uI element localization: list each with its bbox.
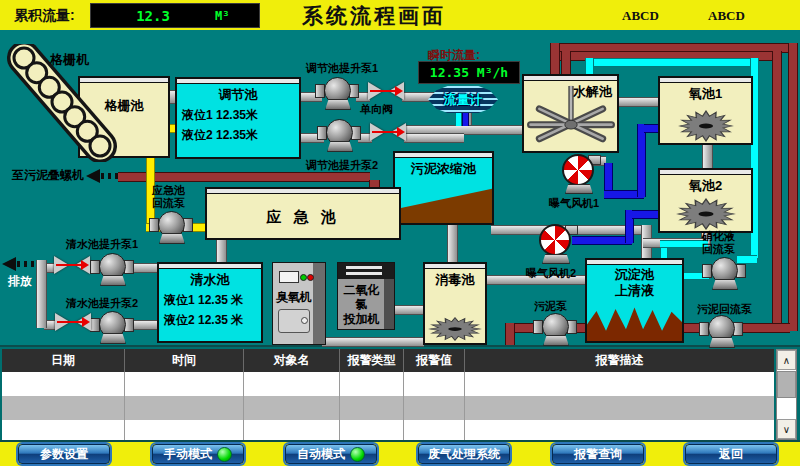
col-alarm-type: 报警类型 xyxy=(340,349,404,372)
col-alarm-desc: 报警描述 xyxy=(465,349,774,372)
air-pipe xyxy=(572,236,632,245)
regulating-pump-1-label: 调节池提升泵1 xyxy=(306,61,378,76)
emergency-return-pump[interactable] xyxy=(152,210,190,244)
sludge-pipe xyxy=(550,43,560,76)
pipe xyxy=(702,143,713,169)
col-date: 日期 xyxy=(2,349,125,372)
pipe xyxy=(447,225,458,263)
tank-title: 调节池 xyxy=(177,86,299,104)
col-alarm-value: 报警值 xyxy=(404,349,465,372)
tank-cap xyxy=(660,170,751,175)
alarm-row xyxy=(2,372,774,396)
return-button[interactable]: 返回 xyxy=(685,444,777,464)
cumulative-flow-unit: M³ xyxy=(215,9,259,23)
tank-emergency-pool: 应 急 池 xyxy=(205,187,401,240)
to-screw-arrow-icon xyxy=(86,169,120,183)
button-label: 废气处理系统 xyxy=(428,446,500,463)
auto-mode-button[interactable]: 自动模式 xyxy=(285,444,377,464)
manual-mode-led-icon xyxy=(217,447,232,462)
scroll-thumb[interactable] xyxy=(777,371,796,398)
tank-regulating-pool: 调节池 液位1 12.35米 液位2 12.35米 xyxy=(175,77,301,159)
scroll-up-button[interactable]: ∧ xyxy=(777,350,796,370)
pipe xyxy=(322,337,424,347)
alarm-table-header: 日期 时间 对象名 报警类型 报警值 报警描述 xyxy=(2,349,774,372)
button-label: 报警查询 xyxy=(574,446,622,463)
hmi-screen: 累积流量: 12.3 M³ 系统流程画面 ABCD ABCD xyxy=(0,0,800,466)
ozone-display xyxy=(279,271,299,283)
meter-pipe xyxy=(462,113,469,126)
aerator-gear-icon xyxy=(678,110,734,142)
ozone-machine-label: 臭氧机 xyxy=(275,289,312,306)
cumulative-flow-value: 12.3 xyxy=(91,8,215,24)
discharge-valve-2[interactable] xyxy=(55,313,91,331)
discharge-label: 排放 xyxy=(8,273,32,290)
sludge-layer xyxy=(587,305,682,341)
top-bar: 累积流量: 12.3 M³ 系统流程画面 ABCD ABCD xyxy=(0,0,800,32)
page-title: 系统流程画面 xyxy=(302,2,446,30)
col-time: 时间 xyxy=(125,349,244,372)
alarm-query-button[interactable]: 报警查询 xyxy=(552,444,644,464)
tank-title: 氧池1 xyxy=(660,85,751,103)
tank-cap xyxy=(660,78,751,83)
pipe xyxy=(616,97,660,107)
button-label: 自动模式 xyxy=(297,446,345,463)
auto-mode-led-icon xyxy=(350,447,365,462)
sludge-pipe xyxy=(505,323,515,345)
clean-pump-1-label: 清水池提升泵1 xyxy=(66,237,138,252)
waste-gas-system-button[interactable]: 废气处理系统 xyxy=(418,444,510,464)
emergency-return-pump-label: 应急池 回流泵 xyxy=(152,184,185,209)
to-sludge-screw-label: 至污泥叠螺机 xyxy=(12,167,84,184)
button-label: 手动模式 xyxy=(164,446,212,463)
ozone-knob-icon xyxy=(301,317,308,324)
process-diagram: 格栅池 格栅机 调节池 液位1 12.35米 液位2 12.35米 水解池 xyxy=(0,30,800,345)
tank-sludge-thickening: 污泥浓缩池 xyxy=(393,151,494,225)
aerator-gear-icon xyxy=(676,198,736,230)
scroll-down-button[interactable]: ∨ xyxy=(777,419,796,439)
aeration-blower-1[interactable] xyxy=(561,154,595,194)
button-label: 参数设置 xyxy=(40,446,88,463)
sludge-pipe xyxy=(118,172,370,182)
tank-cap xyxy=(524,76,617,81)
sludge-pipe xyxy=(788,43,798,331)
sludge-pipe xyxy=(561,51,571,76)
tank-title: 清水池 xyxy=(159,271,261,289)
chlorine-doser-label: 二氧化氯 投加机 xyxy=(338,283,385,326)
sludge-return-pump-label: 污泥回流泵 xyxy=(697,302,752,317)
header-text-abcd-1: ABCD xyxy=(622,8,659,24)
level-1: 液位1 12.35 米 xyxy=(159,289,261,309)
footer-bar: 参数设置 手动模式 自动模式 废气处理系统 报警查询 返回 xyxy=(0,440,800,466)
check-valve-label: 单向阀 xyxy=(360,102,393,117)
tank-cap xyxy=(425,264,485,269)
discharge-valve-1[interactable] xyxy=(54,256,90,274)
tank-cap xyxy=(207,189,399,194)
pipe xyxy=(216,240,227,263)
tank-cap xyxy=(395,153,492,158)
tank-title: 消毒池 xyxy=(425,271,485,289)
sludge-layer xyxy=(395,174,492,223)
sludge-pipe xyxy=(738,323,790,333)
nitrified-pipe xyxy=(660,240,708,248)
regulating-pump-2[interactable] xyxy=(320,118,358,152)
regulating-pump-1[interactable] xyxy=(318,76,356,110)
air-pipe xyxy=(644,124,659,133)
sludge-pipe xyxy=(772,51,782,331)
tank-clean-water-pool: 清水池 液位1 12.35 米 液位2 12.35 米 xyxy=(157,262,263,343)
chlorine-doser-machine[interactable]: 二氧化氯 投加机 xyxy=(337,262,395,330)
regulating-pump-2-label: 调节池提升泵2 xyxy=(306,158,378,173)
green-indicator-icon xyxy=(300,274,307,281)
manual-mode-button[interactable]: 手动模式 xyxy=(152,444,244,464)
clean-water-pump-2[interactable] xyxy=(93,310,131,344)
alarm-row xyxy=(2,420,774,440)
tank-title: 沉淀池 上清液 xyxy=(587,267,682,298)
meter-pipe xyxy=(455,113,462,126)
check-valve-1[interactable] xyxy=(368,82,404,100)
tank-title: 污泥浓缩池 xyxy=(395,160,492,178)
blower-1-label: 曝气风机1 xyxy=(549,196,599,211)
tank-sedimentation-pool: 沉淀池 上清液 xyxy=(585,258,684,343)
clean-water-pump-1[interactable] xyxy=(93,252,131,286)
check-valve-2[interactable] xyxy=(370,123,406,141)
alarm-table: 日期 时间 对象名 报警类型 报警值 报警描述 ∧ ∨ xyxy=(0,345,800,440)
nitrified-return-pump[interactable] xyxy=(705,256,743,290)
sludge-pump[interactable] xyxy=(536,312,574,346)
pipe xyxy=(393,305,424,315)
air-pipe xyxy=(632,210,659,219)
ozone-machine[interactable]: 臭氧机 xyxy=(272,262,326,345)
cumulative-flow-display: 12.3 M³ xyxy=(90,3,260,28)
pipe xyxy=(404,133,464,143)
param-settings-button[interactable]: 参数设置 xyxy=(18,444,110,464)
clean-pump-2-label: 清水池提升泵2 xyxy=(66,296,138,311)
level-1: 液位1 12.35米 xyxy=(177,104,299,124)
discharge-arrow-icon xyxy=(2,257,38,271)
alarm-row xyxy=(2,396,774,420)
tank-title: 氧池2 xyxy=(660,177,751,195)
instant-flow-label: 瞬时流量: xyxy=(428,47,480,64)
alarm-scrollbar[interactable]: ∧ ∨ xyxy=(776,349,797,440)
aeration-blower-2[interactable] xyxy=(538,224,572,264)
tank-cap xyxy=(587,260,682,265)
air-pipe xyxy=(637,124,646,197)
flow-meter[interactable]: 流量计 xyxy=(428,86,498,113)
nitrified-return-pump-label: 硝化液 回流泵 xyxy=(702,230,735,255)
button-label: 返回 xyxy=(719,446,743,463)
blower-2-label: 曝气风机2 xyxy=(526,266,576,281)
cumulative-flow-label: 累积流量: xyxy=(14,7,75,25)
sludge-return-pump[interactable] xyxy=(702,314,740,348)
mixer-icon xyxy=(527,82,615,148)
red-indicator-icon xyxy=(307,274,314,281)
sludge-pump-label: 污泥泵 xyxy=(534,299,567,314)
instant-flow-display: 12.35 M³/h xyxy=(418,61,520,84)
col-object: 对象名 xyxy=(244,349,340,372)
doser-vent xyxy=(338,263,394,279)
tank-title: 应 急 池 xyxy=(207,208,399,227)
tank-cap xyxy=(159,264,261,269)
nitrified-pipe xyxy=(585,58,757,67)
aerator-gear-icon xyxy=(428,317,482,341)
level-2: 液位2 12.35米 xyxy=(177,124,299,144)
level-2: 液位2 12.35 米 xyxy=(159,309,261,329)
header-text-abcd-2: ABCD xyxy=(708,8,745,24)
grating-machine-label: 格栅机 xyxy=(50,51,89,69)
tank-cap xyxy=(177,79,299,84)
